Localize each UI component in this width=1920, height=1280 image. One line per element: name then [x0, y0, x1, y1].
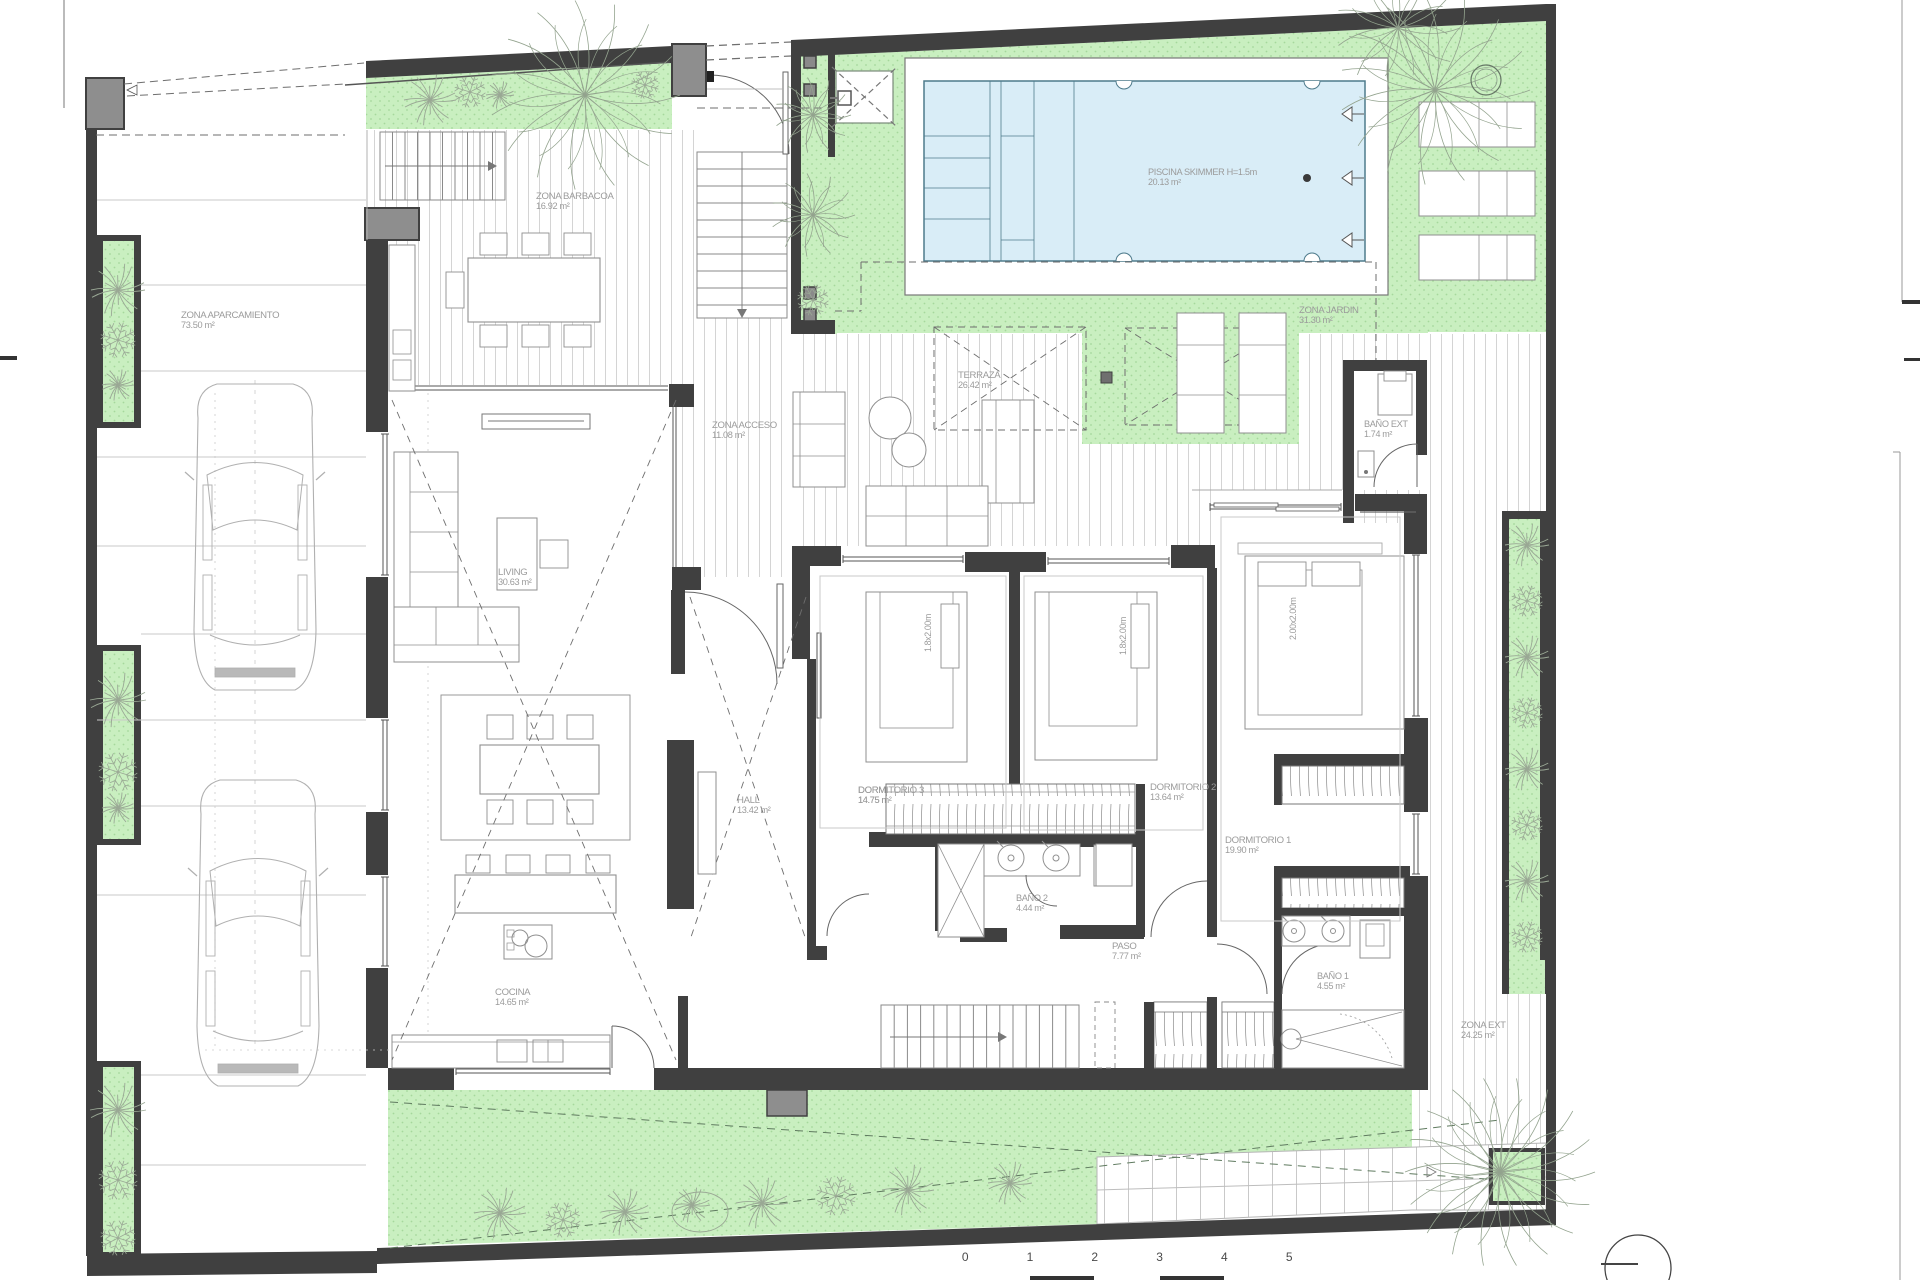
- svg-text:20.13 m²: 20.13 m²: [1148, 177, 1181, 187]
- svg-text:PISCINA SKIMMER H=1.5m: PISCINA SKIMMER H=1.5m: [1148, 167, 1258, 177]
- svg-text:13.42 m²: 13.42 m²: [737, 805, 771, 815]
- svg-text:BAÑO EXT: BAÑO EXT: [1364, 419, 1408, 429]
- svg-text:73.50 m²: 73.50 m²: [181, 320, 215, 330]
- svg-text:1: 1: [1027, 1250, 1034, 1264]
- svg-text:26.42 m²: 26.42 m²: [958, 380, 992, 390]
- svg-text:2.00x2.00m: 2.00x2.00m: [1288, 598, 1298, 640]
- svg-text:BAÑO 2: BAÑO 2: [1016, 893, 1048, 903]
- svg-text:14.65 m²: 14.65 m²: [495, 997, 529, 1007]
- svg-text:14.75 m²: 14.75 m²: [858, 795, 892, 805]
- svg-text:2: 2: [1091, 1250, 1098, 1264]
- svg-text:4: 4: [1221, 1250, 1228, 1264]
- svg-text:3: 3: [1156, 1250, 1163, 1264]
- svg-text:5: 5: [1286, 1250, 1293, 1264]
- svg-text:30.63 m²: 30.63 m²: [498, 577, 532, 587]
- svg-text:13.64 m²: 13.64 m²: [1150, 792, 1184, 802]
- svg-text:4.55 m²: 4.55 m²: [1317, 981, 1345, 991]
- svg-text:11.08 m²: 11.08 m²: [712, 430, 745, 440]
- svg-text:16.92 m²: 16.92 m²: [536, 201, 570, 211]
- svg-text:4.44 m²: 4.44 m²: [1016, 903, 1044, 913]
- svg-text:1.74 m²: 1.74 m²: [1364, 429, 1392, 439]
- svg-text:0: 0: [962, 1250, 969, 1264]
- svg-text:24.25 m²: 24.25 m²: [1461, 1030, 1495, 1040]
- svg-text:7.77 m²: 7.77 m²: [1112, 951, 1141, 961]
- svg-text:1.8x2.00m: 1.8x2.00m: [1118, 617, 1128, 655]
- svg-text:31.30 m²: 31.30 m²: [1299, 315, 1333, 325]
- svg-text:19.90 m²: 19.90 m²: [1225, 845, 1259, 855]
- svg-text:1.8x2.00m: 1.8x2.00m: [923, 614, 933, 652]
- svg-text:BAÑO 1: BAÑO 1: [1317, 971, 1349, 981]
